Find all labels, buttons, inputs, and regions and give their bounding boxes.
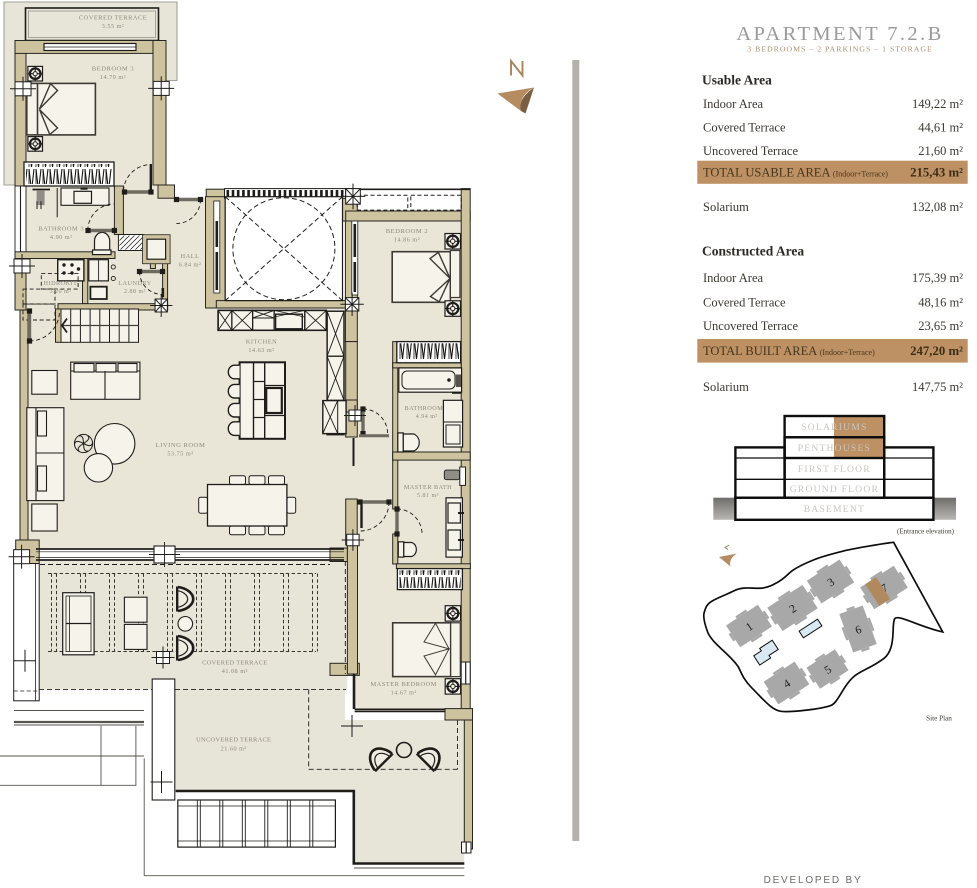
svg-text:6.84 m²: 6.84 m² <box>179 261 202 268</box>
svg-text:5.81 m²: 5.81 m² <box>417 493 439 499</box>
svg-text:LIVING ROOM: LIVING ROOM <box>156 442 206 449</box>
svg-text:BATHROOM 2: BATHROOM 2 <box>405 405 449 412</box>
svg-text:COVERED TERRACE: COVERED TERRACE <box>202 660 267 667</box>
svg-text:Indoor Area: Indoor Area <box>703 271 763 285</box>
svg-text:14.67 m²: 14.67 m² <box>391 690 417 697</box>
svg-text:LAUNDRY: LAUNDRY <box>118 280 151 287</box>
svg-text:3 BEDROOMS – 2 PARKINGS – 1 ST: 3 BEDROOMS – 2 PARKINGS – 1 STORAGE <box>747 45 933 54</box>
svg-text:Uncovered Terrace: Uncovered Terrace <box>703 144 798 158</box>
svg-text:2.88 m²: 2.88 m² <box>124 289 146 295</box>
svg-text:(Entrance elevation): (Entrance elevation) <box>897 528 955 536</box>
svg-text:4.90 m²: 4.90 m² <box>50 234 73 241</box>
svg-text:175,39 m²: 175,39 m² <box>912 271 963 285</box>
svg-text:14.86 m²: 14.86 m² <box>394 237 420 244</box>
svg-text:41.08 m²: 41.08 m² <box>222 668 248 675</box>
svg-text:UNCOVERED TERRACE: UNCOVERED TERRACE <box>196 737 271 744</box>
svg-text:3.20 m²: 3.20 m² <box>50 289 72 295</box>
svg-text:MASTER BATH: MASTER BATH <box>404 484 452 491</box>
svg-text:Covered Terrace: Covered Terrace <box>703 121 786 135</box>
svg-text:Usable Area: Usable Area <box>702 73 772 88</box>
svg-text:KITCHEN: KITCHEN <box>246 339 278 346</box>
svg-text:Uncovered Terrace: Uncovered Terrace <box>703 319 798 333</box>
svg-text:GROUND FLOOR: GROUND FLOOR <box>790 484 879 495</box>
svg-text:Indoor Area: Indoor Area <box>703 97 763 111</box>
svg-text:BEDROOM 2: BEDROOM 2 <box>386 228 428 235</box>
svg-text:BEDROOM 3: BEDROOM 3 <box>92 66 135 73</box>
svg-text:3.55 m²: 3.55 m² <box>102 23 125 30</box>
svg-text:PENTHOUSES: PENTHOUSES <box>798 443 871 454</box>
svg-text:MASTER BEDROOM: MASTER BEDROOM <box>370 681 436 688</box>
svg-text:149,22 m²: 149,22 m² <box>912 97 963 111</box>
svg-text:21.60 m²: 21.60 m² <box>221 746 247 753</box>
svg-text:44,61 m²: 44,61 m² <box>918 121 963 135</box>
svg-text:14.63 m²: 14.63 m² <box>248 347 274 354</box>
svg-text:132,08 m²: 132,08 m² <box>912 200 963 214</box>
svg-text:48,16 m²: 48,16 m² <box>918 296 963 310</box>
svg-text:COVERED TERRACE: COVERED TERRACE <box>79 15 147 22</box>
svg-text:SOLARIUMS: SOLARIUMS <box>801 422 867 433</box>
svg-text:DEVELOPED BY: DEVELOPED BY <box>764 875 863 886</box>
svg-text:Solarium: Solarium <box>703 380 749 394</box>
svg-text:Covered Terrace: Covered Terrace <box>703 296 786 310</box>
svg-text:BASEMENT: BASEMENT <box>804 504 865 515</box>
svg-text:23,65 m²: 23,65 m² <box>918 319 963 333</box>
svg-text:HIDROKIT: HIDROKIT <box>44 280 78 287</box>
svg-text:HALL: HALL <box>180 253 199 260</box>
svg-text:APARTMENT 7.2.B: APARTMENT 7.2.B <box>736 23 943 45</box>
svg-text:Solarium: Solarium <box>703 200 749 214</box>
svg-text:215,43 m²: 215,43 m² <box>910 166 963 180</box>
svg-text:Constructed Area: Constructed Area <box>702 244 804 259</box>
svg-text:53.75 m²: 53.75 m² <box>167 451 193 458</box>
svg-text:21,60 m²: 21,60 m² <box>918 144 963 158</box>
svg-text:Site Plan: Site Plan <box>926 715 952 723</box>
svg-text:FIRST FLOOR: FIRST FLOOR <box>798 464 871 475</box>
svg-text:147,75 m²: 147,75 m² <box>912 380 963 394</box>
svg-text:14.79 m²: 14.79 m² <box>100 74 126 81</box>
svg-text:247,20 m²: 247,20 m² <box>910 344 963 358</box>
svg-text:BATHROOM 3: BATHROOM 3 <box>38 226 84 233</box>
svg-text:4.94 m²: 4.94 m² <box>416 414 438 420</box>
